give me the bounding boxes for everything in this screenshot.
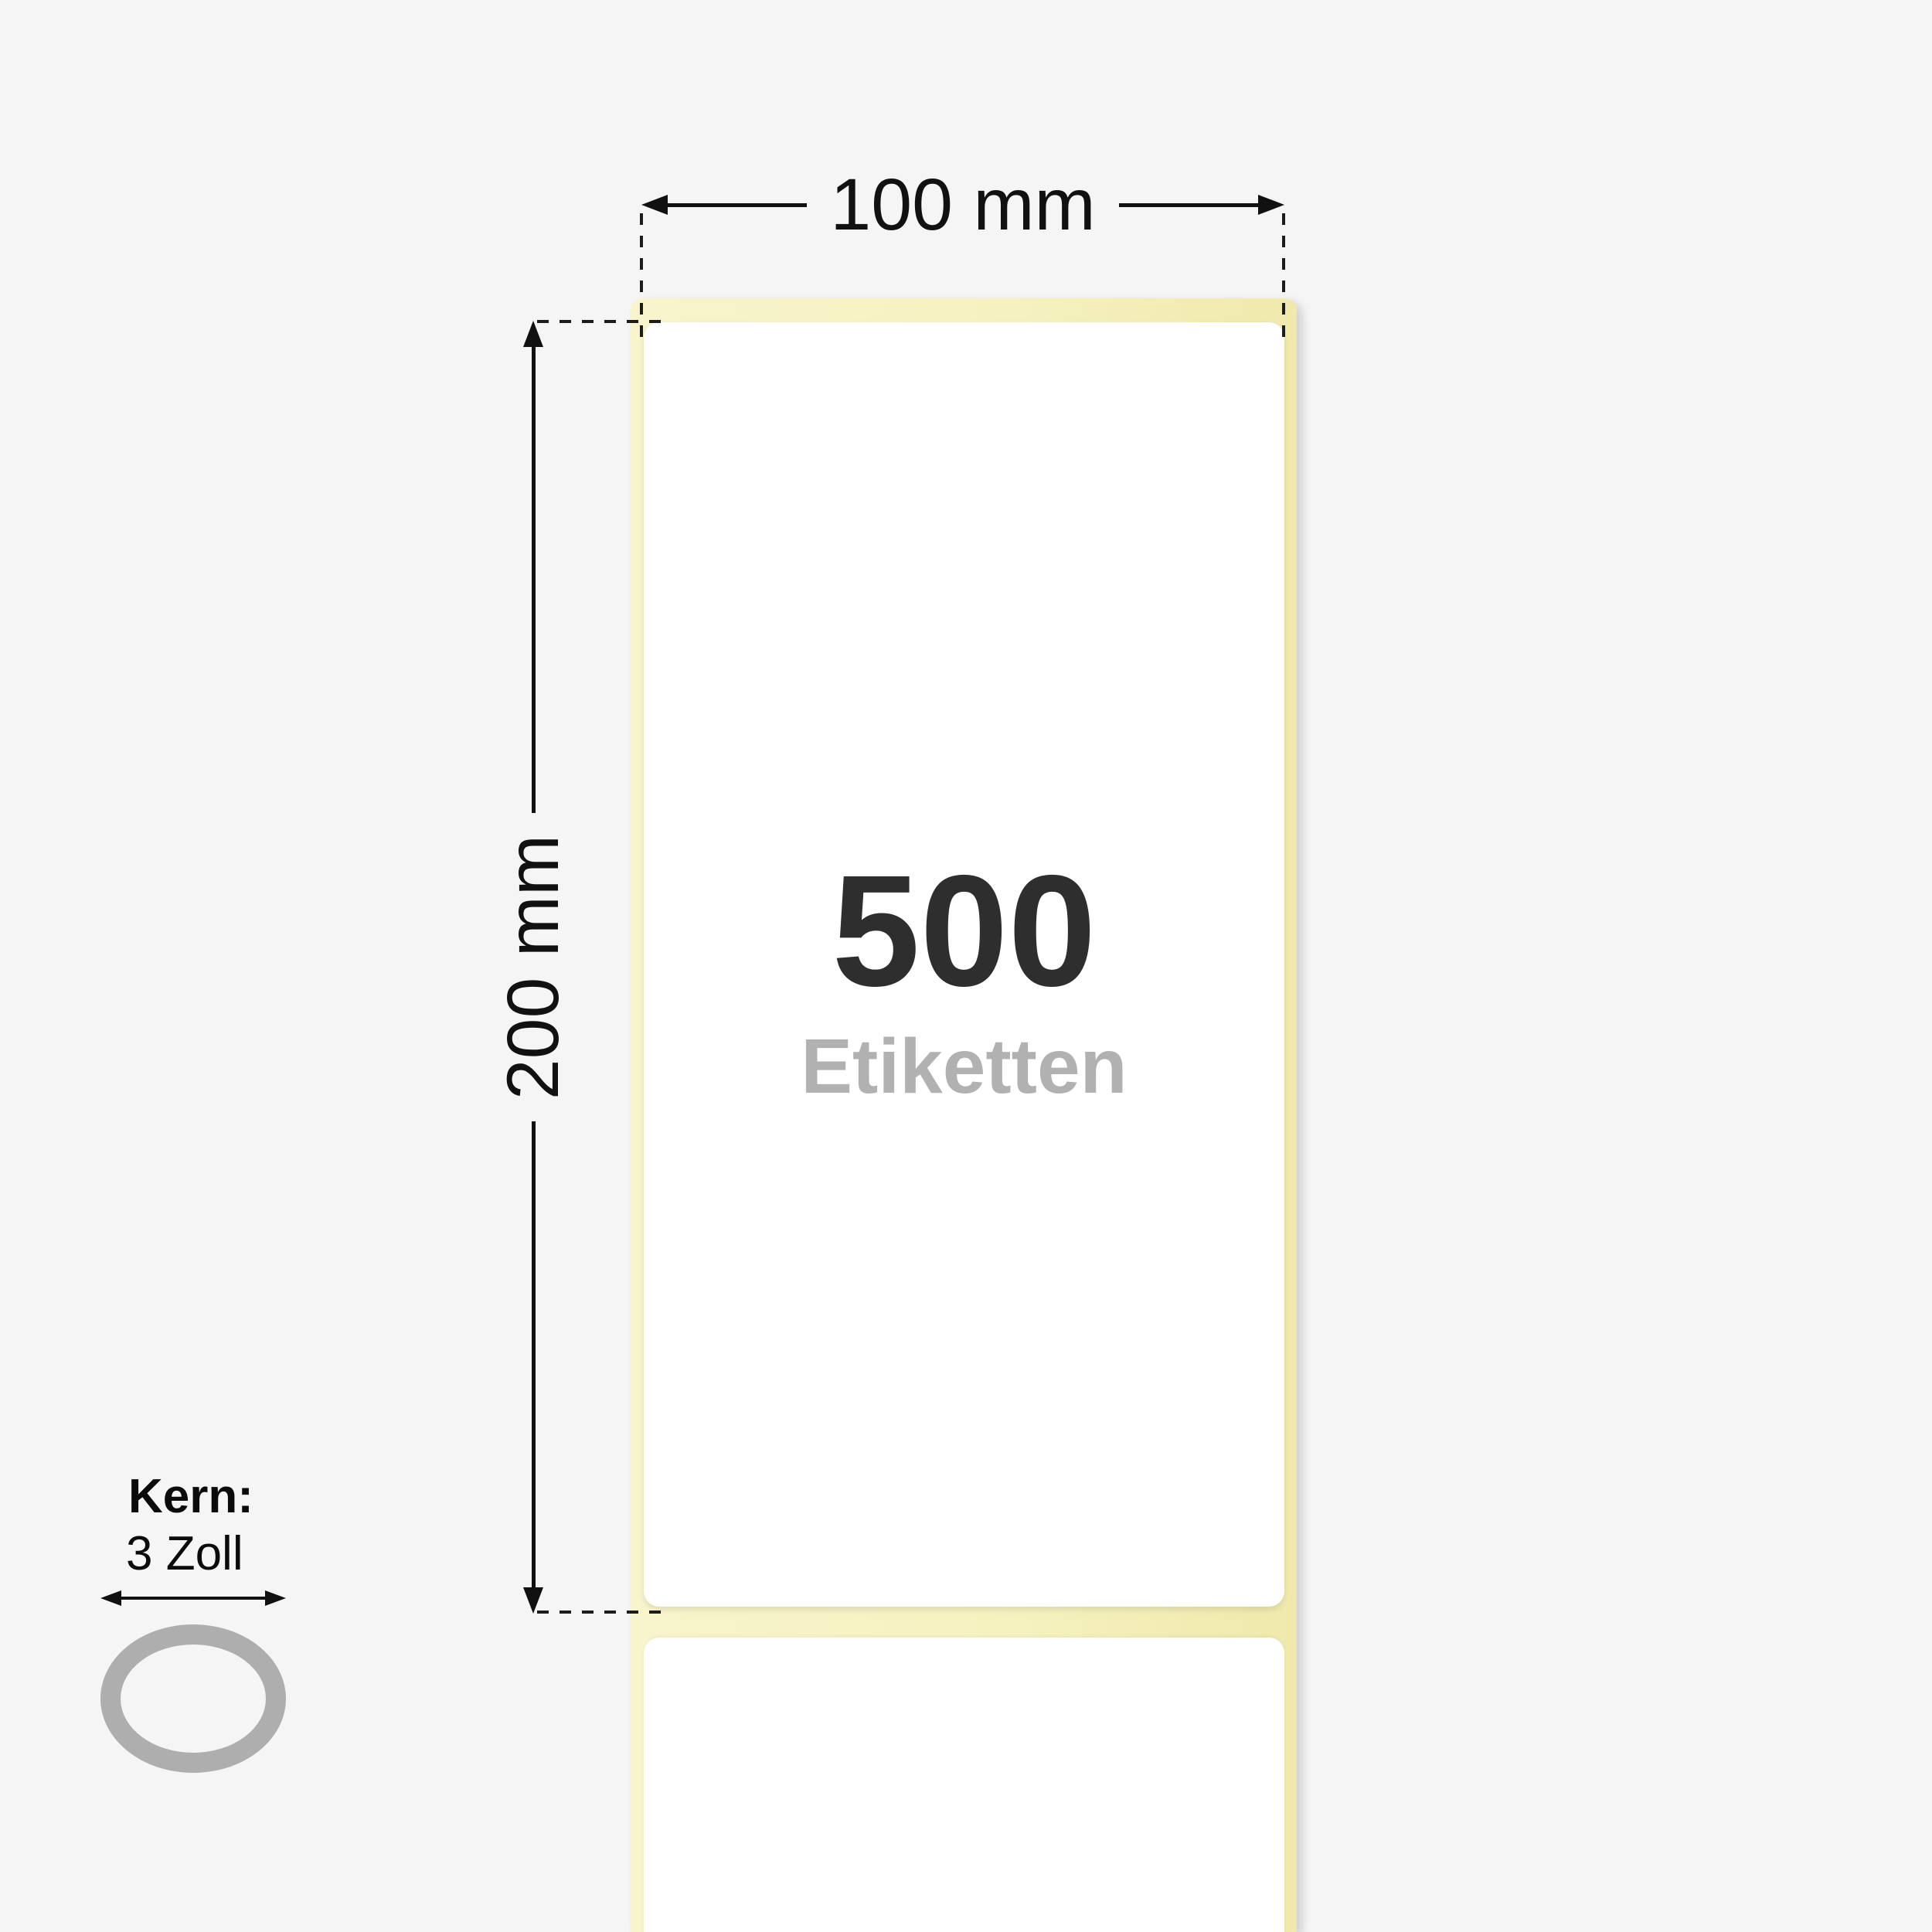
- height-dimension-label: 200 mm: [497, 835, 570, 1100]
- label-count-unit: Etiketten: [801, 1028, 1127, 1105]
- label-blank-partial: [644, 1638, 1284, 1932]
- arrow-left-icon: [100, 1590, 121, 1606]
- dimension-line-segment: [668, 203, 807, 207]
- label-roll-illustration: 500 Etiketten 100 mm 200 mm Kern: 3 Zoll: [0, 0, 1932, 1932]
- core-arrow-line: [121, 1597, 265, 1600]
- extension-line-bottom: [537, 1611, 668, 1614]
- arrow-right-icon: [265, 1590, 286, 1606]
- core-diameter-arrow: [100, 1587, 286, 1609]
- dimension-line-segment: [532, 347, 536, 813]
- arrow-right-icon: [1258, 195, 1284, 215]
- core-label: Kern:: [128, 1473, 253, 1521]
- extension-line-right: [1282, 213, 1285, 346]
- dimension-line-segment: [1119, 203, 1258, 207]
- arrow-down-icon: [523, 1587, 543, 1614]
- arrow-left-icon: [641, 195, 668, 215]
- core-ring-icon: [100, 1624, 286, 1773]
- extension-line-top: [537, 320, 668, 323]
- arrow-up-icon: [523, 321, 543, 347]
- extension-line-left: [640, 213, 643, 346]
- label-count: 500: [832, 852, 1096, 1010]
- width-dimension: 100 mm: [641, 166, 1284, 243]
- label-blank: 500 Etiketten: [644, 322, 1284, 1607]
- width-dimension-label: 100 mm: [807, 168, 1118, 242]
- dimension-line-segment: [532, 1121, 536, 1587]
- core-value: 3 Zoll: [126, 1530, 243, 1578]
- height-dimension: 200 mm: [512, 321, 555, 1614]
